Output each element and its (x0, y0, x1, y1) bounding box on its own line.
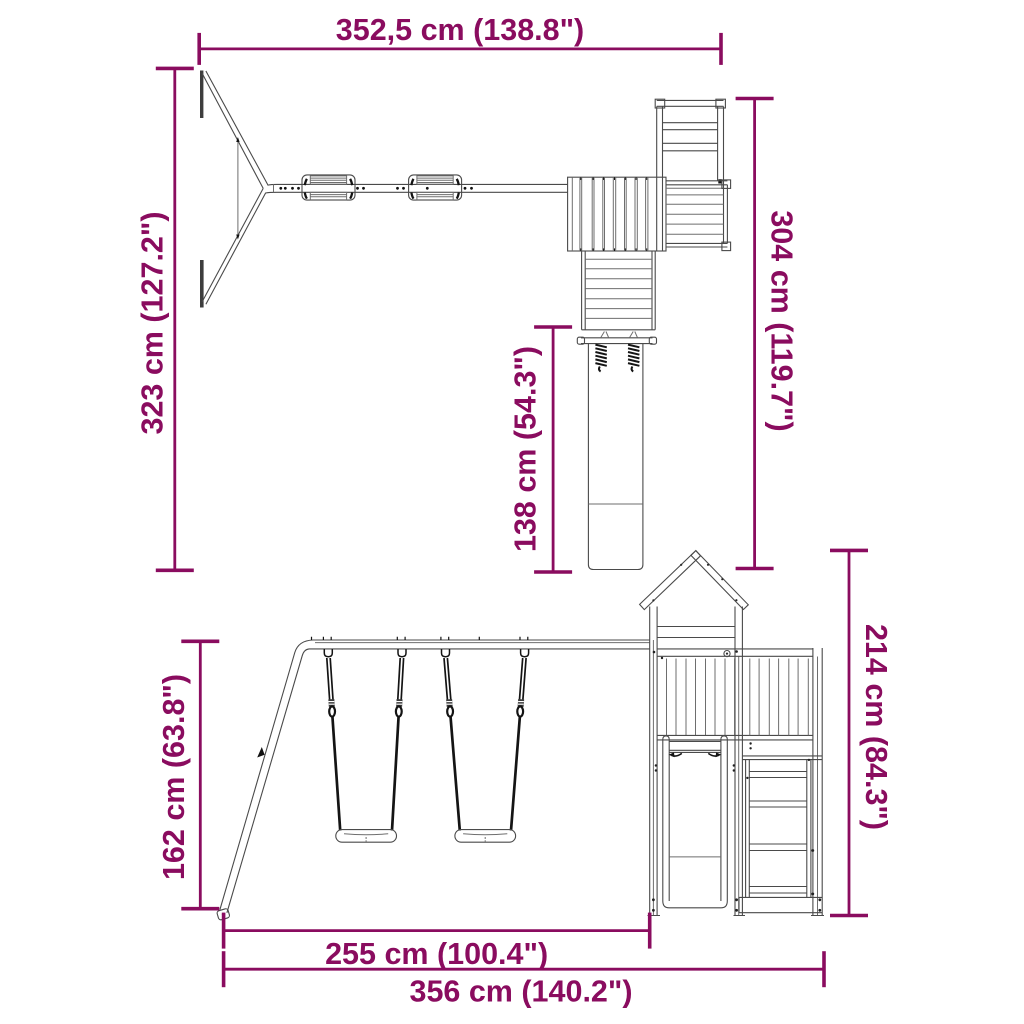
svg-text:323 cm (127.2"): 323 cm (127.2") (136, 211, 170, 434)
svg-text:304 cm (119.7"): 304 cm (119.7") (765, 210, 799, 431)
svg-text:352,5 cm (138.8"): 352,5 cm (138.8") (336, 13, 584, 47)
svg-text:255 cm (100.4"): 255 cm (100.4") (325, 937, 548, 971)
svg-text:356 cm (140.2"): 356 cm (140.2") (409, 975, 632, 1009)
svg-text:138 cm (54.3"): 138 cm (54.3") (509, 346, 543, 552)
svg-text:214 cm (84.3"): 214 cm (84.3") (859, 624, 893, 830)
svg-text:162 cm (63.8"): 162 cm (63.8") (157, 674, 191, 880)
